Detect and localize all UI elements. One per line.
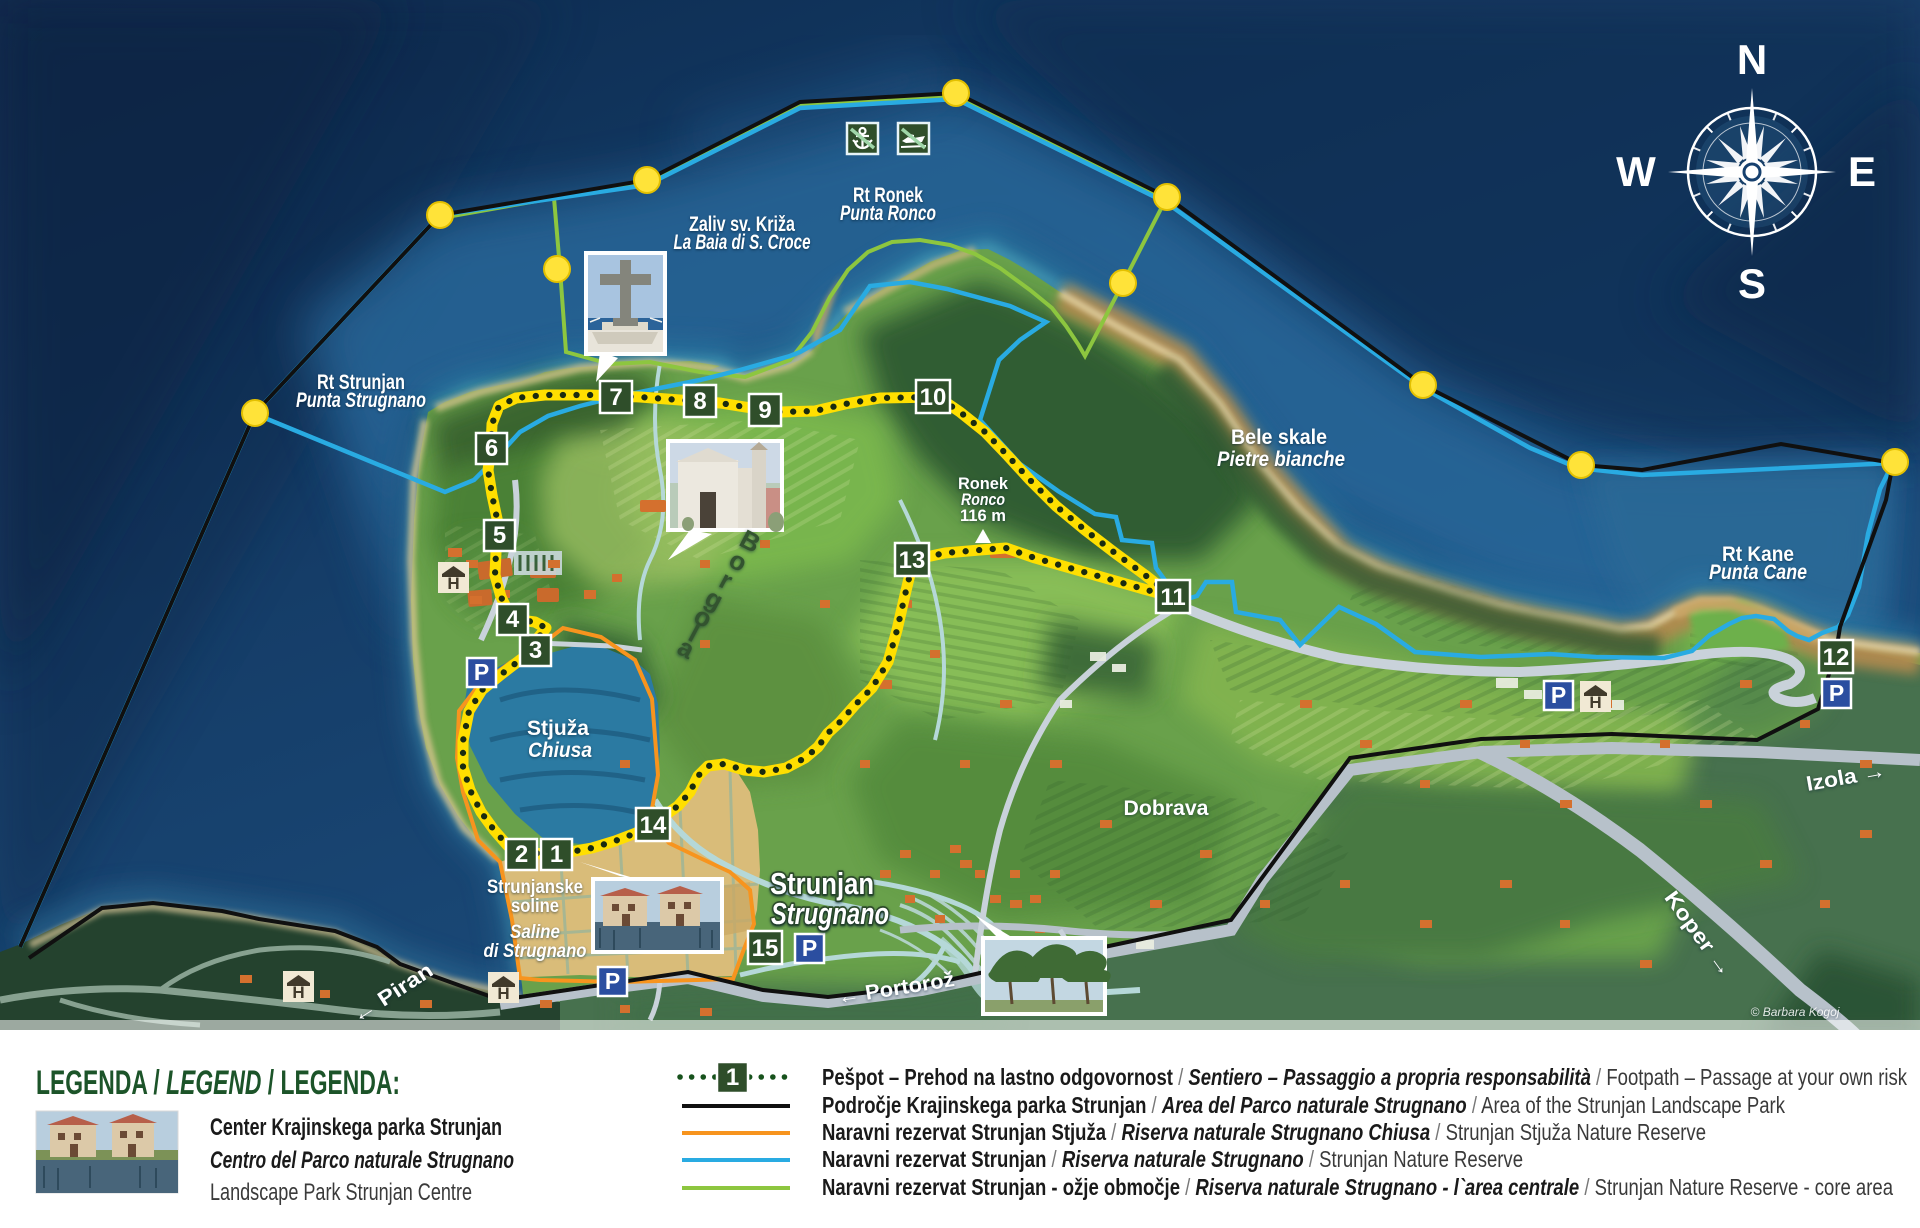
svg-text:Naravni rezervat Strunjan Stju: Naravni rezervat Strunjan Stjuža / Riser…	[822, 1119, 1706, 1145]
svg-text:S: S	[1738, 260, 1766, 307]
svg-text:Pešpot – Prehod na lastno odgo: Pešpot – Prehod na lastno odgovornost / …	[822, 1064, 1907, 1090]
svg-text:Punta Strugnano: Punta Strugnano	[296, 389, 426, 412]
svg-text:P: P	[1551, 682, 1566, 708]
svg-text:P: P	[474, 659, 489, 685]
svg-text:Chiusa: Chiusa	[528, 739, 592, 762]
svg-text:Naravni rezervat Strunjan /: Naravni rezervat Strunjan / Riserva natu…	[822, 1146, 1523, 1172]
svg-text:La Baia di S. Croce: La Baia di S. Croce	[674, 231, 811, 254]
svg-text:W: W	[1616, 148, 1656, 195]
svg-text:H: H	[447, 574, 459, 593]
svg-text:13: 13	[899, 547, 926, 574]
svg-text:di Strugnano: di Strugnano	[484, 941, 587, 962]
svg-text:P: P	[802, 935, 817, 961]
svg-text:12: 12	[1823, 644, 1850, 671]
svg-text:soline: soline	[511, 896, 559, 917]
svg-text:Strugnano: Strugnano	[771, 896, 889, 931]
svg-text:7: 7	[609, 384, 622, 411]
svg-text:1: 1	[550, 841, 563, 868]
svg-text:H: H	[292, 983, 304, 1002]
svg-text:116 m: 116 m	[960, 506, 1006, 525]
svg-text:P: P	[605, 968, 620, 994]
svg-text:10: 10	[920, 384, 947, 411]
svg-text:14: 14	[640, 812, 667, 839]
svg-text:Naravni rezervat Strunjan - ož: Naravni rezervat Strunjan - ožje območje…	[822, 1174, 1893, 1200]
svg-text:N: N	[1737, 36, 1767, 83]
svg-text:Punta Ronco: Punta Ronco	[840, 202, 936, 225]
svg-text:Center Krajinskega parka Strun: Center Krajinskega parka Strunjan	[210, 1114, 502, 1141]
svg-text:Dobrava: Dobrava	[1124, 797, 1209, 820]
svg-text:H: H	[1589, 693, 1601, 712]
svg-text:Saline: Saline	[510, 922, 560, 943]
svg-text:15: 15	[752, 935, 779, 962]
svg-text:© Barbara Kogoj: © Barbara Kogoj	[1751, 1005, 1840, 1019]
svg-text:2: 2	[515, 841, 528, 868]
svg-text:Punta Cane: Punta Cane	[1709, 561, 1807, 584]
svg-text:Strunjanske: Strunjanske	[487, 877, 583, 898]
svg-text:Področje Krajinskega parka Str: Področje Krajinskega parka Strunjan / Ar…	[822, 1092, 1785, 1118]
svg-text:LEGENDA / LEGEND / LEGENDA:: LEGENDA / LEGEND / LEGENDA:	[36, 1064, 400, 1102]
svg-text:Pietre bianche: Pietre bianche	[1217, 448, 1345, 471]
svg-text:11: 11	[1160, 584, 1185, 611]
svg-text:Landscape Park Strunjan Centre: Landscape Park Strunjan Centre	[210, 1179, 472, 1206]
svg-text:5: 5	[493, 522, 506, 549]
svg-text:4: 4	[506, 606, 520, 633]
svg-text:3: 3	[529, 637, 542, 664]
svg-text:1: 1	[726, 1064, 739, 1091]
svg-text:Centro del Parco naturale Stru: Centro del Parco naturale Strugnano	[210, 1147, 514, 1174]
svg-text:E: E	[1848, 148, 1876, 195]
svg-text:9: 9	[758, 397, 771, 424]
svg-text:6: 6	[485, 435, 498, 462]
svg-text:Stjuža: Stjuža	[527, 717, 589, 740]
svg-text:H: H	[497, 984, 509, 1003]
svg-text:8: 8	[693, 388, 706, 415]
svg-text:P: P	[1829, 680, 1844, 706]
svg-text:Bele skale: Bele skale	[1231, 426, 1327, 449]
